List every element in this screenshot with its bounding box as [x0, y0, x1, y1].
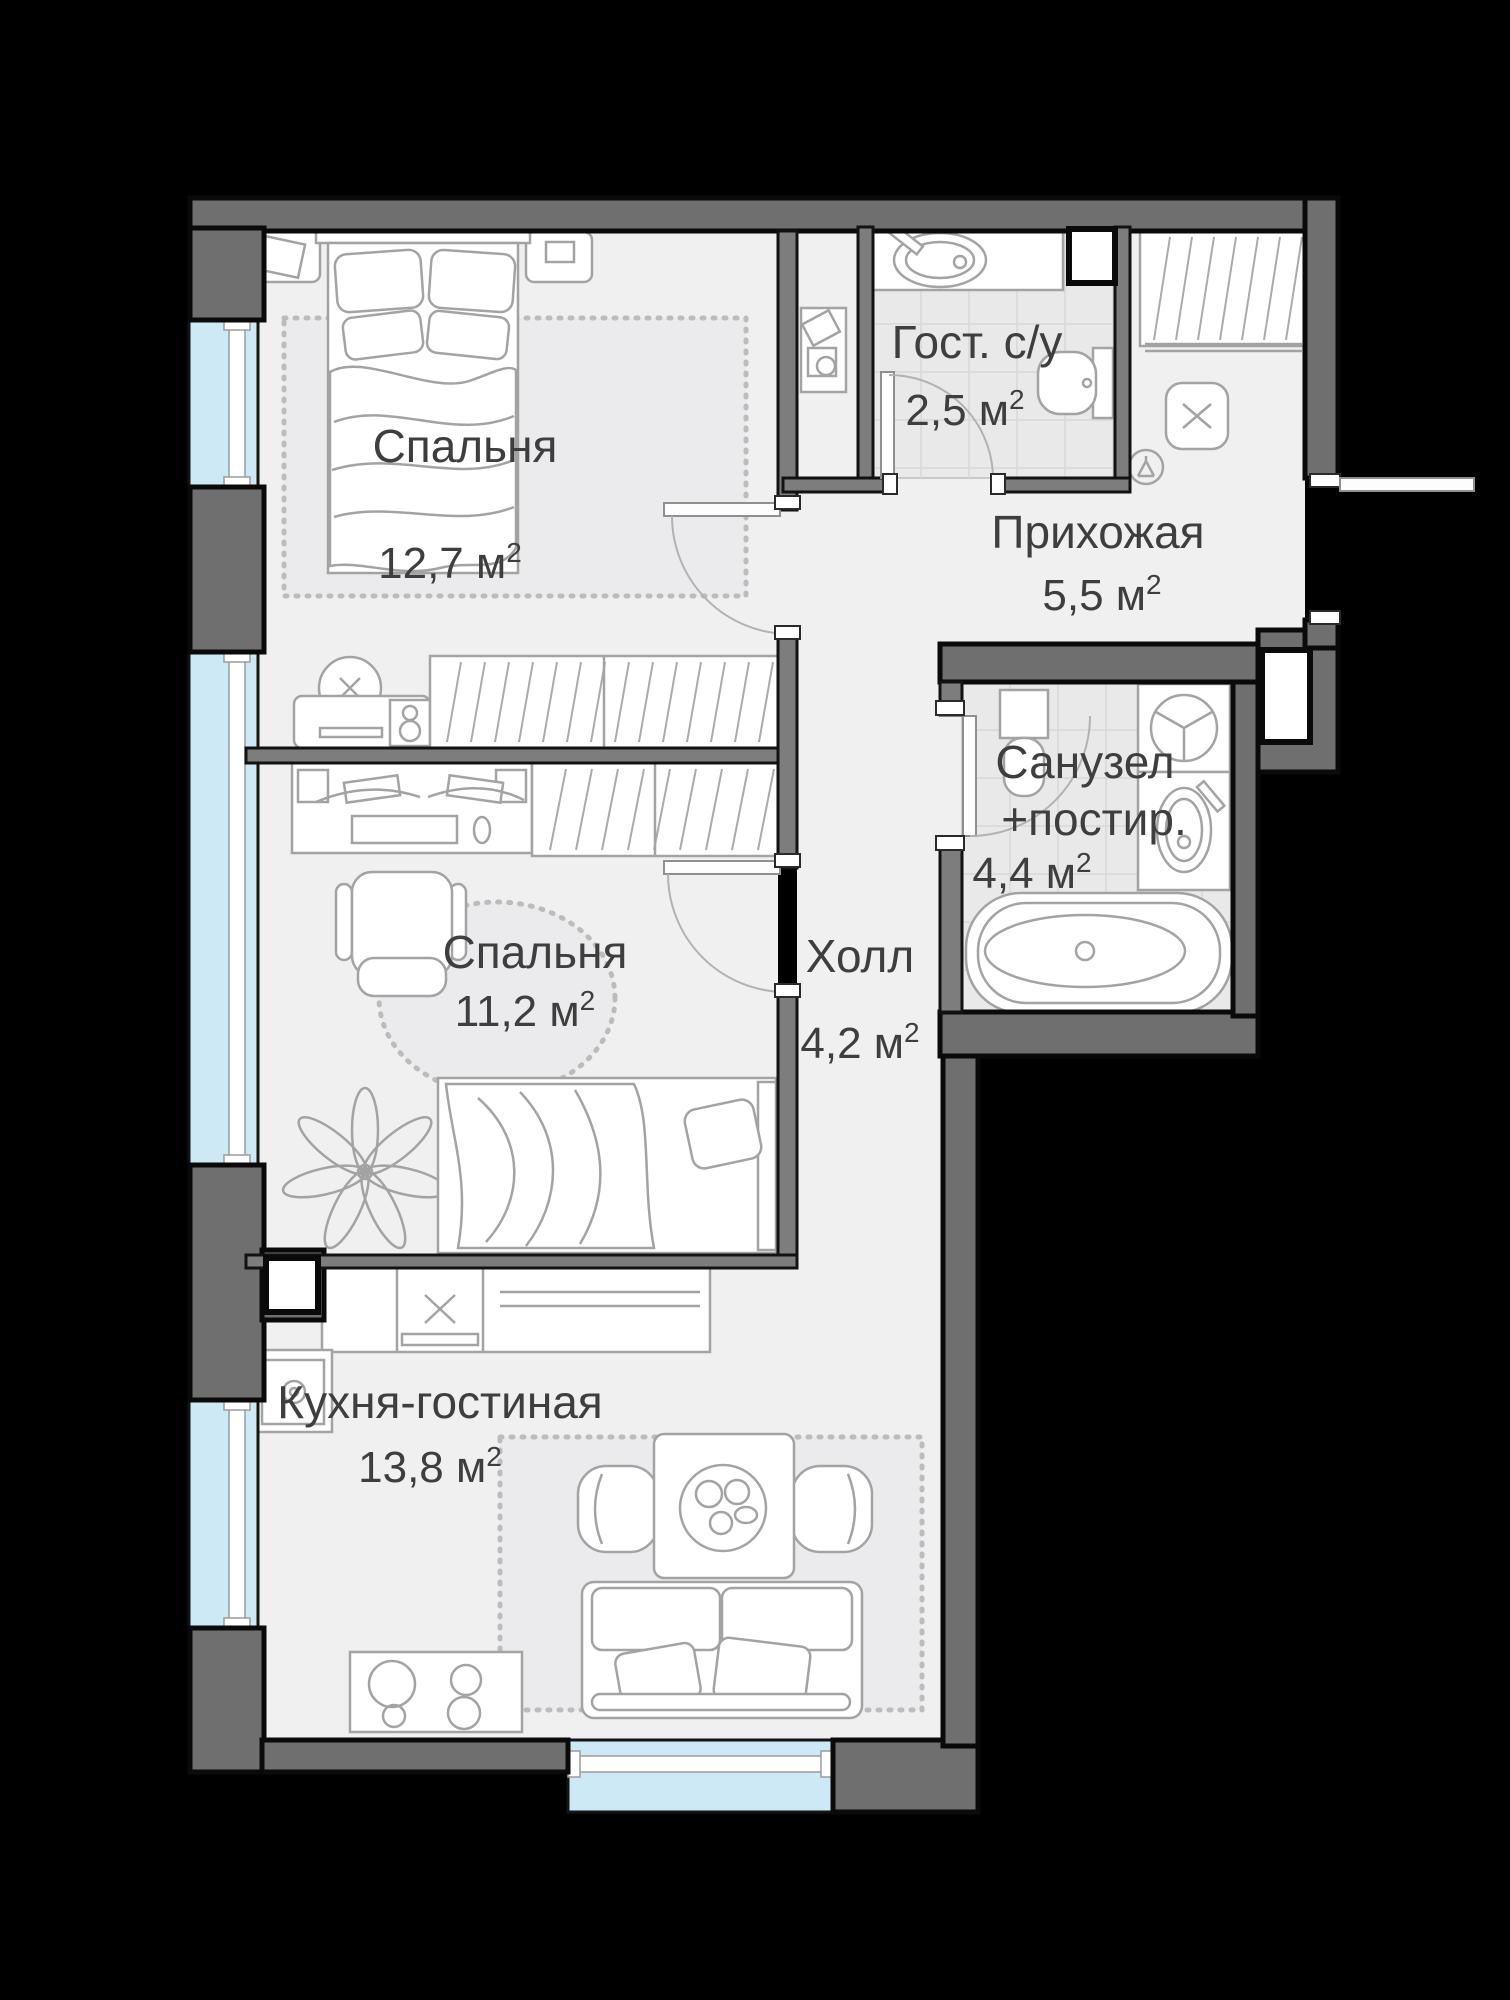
bedroom-2-area: 11,2 м2 — [455, 985, 595, 1036]
bedroom-1-area: 12,7 м2 — [378, 537, 522, 588]
hallway-name: Прихожая — [991, 506, 1204, 558]
bathtub-icon — [966, 893, 1232, 1013]
floor-hall-upper — [797, 492, 873, 644]
entry-door — [1310, 474, 1474, 624]
bathroom-name-2: +постир. — [1001, 793, 1186, 845]
wall-bedroom1-right — [778, 231, 797, 510]
wall-guestwc-bottom — [995, 478, 1130, 492]
wall-pier — [190, 487, 264, 652]
wardrobe-icon — [430, 656, 778, 748]
chair-icon — [792, 1466, 872, 1552]
floor-bath-door-gap — [940, 715, 962, 840]
kitchen-counter-icon — [322, 1268, 710, 1352]
wall-pier — [190, 1628, 264, 1772]
vent-shaft — [266, 1258, 318, 1312]
wall-pier — [190, 228, 264, 320]
bathroom-name-1: Санузел — [995, 736, 1174, 788]
wall-bath-top — [940, 644, 1258, 682]
wall-nook-right — [858, 227, 873, 478]
kitchen-area: 13,8 м2 — [358, 1441, 502, 1492]
wall-pier — [190, 1165, 264, 1400]
vent-shaft — [1069, 229, 1115, 283]
floor-door-gap — [893, 478, 995, 492]
wall-bath-right — [1233, 682, 1258, 1016]
bedroom-2-name: Спальня — [443, 926, 628, 978]
wall-bath-bottom — [940, 1012, 1258, 1056]
wall-corner — [833, 1740, 978, 1812]
hall-name: Холл — [806, 930, 914, 982]
wall-bedroom2-right — [778, 988, 797, 1255]
window — [189, 1400, 258, 1628]
wall-guestwc-bottom — [783, 478, 893, 492]
window — [189, 320, 258, 487]
hall-area: 4,2 м2 — [800, 1017, 919, 1068]
hallway-area: 5,5 м2 — [1042, 569, 1161, 620]
wall-bedroom2-kitchen — [246, 1255, 797, 1268]
phone-icon — [546, 242, 574, 262]
wall-bottom — [262, 1740, 568, 1772]
kitchen-name: Кухня-гостиная — [277, 1376, 602, 1428]
wardrobe-icon — [532, 763, 778, 856]
sofa-icon — [582, 1582, 862, 1718]
window — [568, 1740, 833, 1812]
wall-entry-right — [1305, 198, 1338, 478]
bathroom-area: 4,4 м2 — [972, 847, 1091, 898]
chair-icon — [578, 1466, 658, 1552]
wall-top — [190, 198, 1338, 231]
window — [189, 652, 258, 1165]
nook-desk-icon — [801, 308, 846, 392]
wall-bath-left — [940, 840, 962, 1012]
guest-wc-name: Гост. с/у — [892, 316, 1063, 368]
desk-icon — [292, 763, 532, 853]
wall-hall-left — [778, 628, 797, 868]
single-bed-icon — [438, 1078, 776, 1253]
entry-closet-icon — [1140, 231, 1305, 351]
cooktop-icon — [350, 1652, 522, 1732]
wall-bedroom-divider — [246, 748, 797, 763]
floor-plan: Спальня 12,7 м2 Гост. с/у 2,5 м2 Прихожа… — [0, 0, 1510, 2000]
double-bed-icon — [316, 228, 530, 573]
bedroom-1-name: Спальня — [373, 420, 558, 472]
wall-kitchen-right — [943, 1056, 978, 1746]
guest-wc-area: 2,5 м2 — [905, 384, 1024, 435]
vent-shaft — [1262, 650, 1310, 742]
